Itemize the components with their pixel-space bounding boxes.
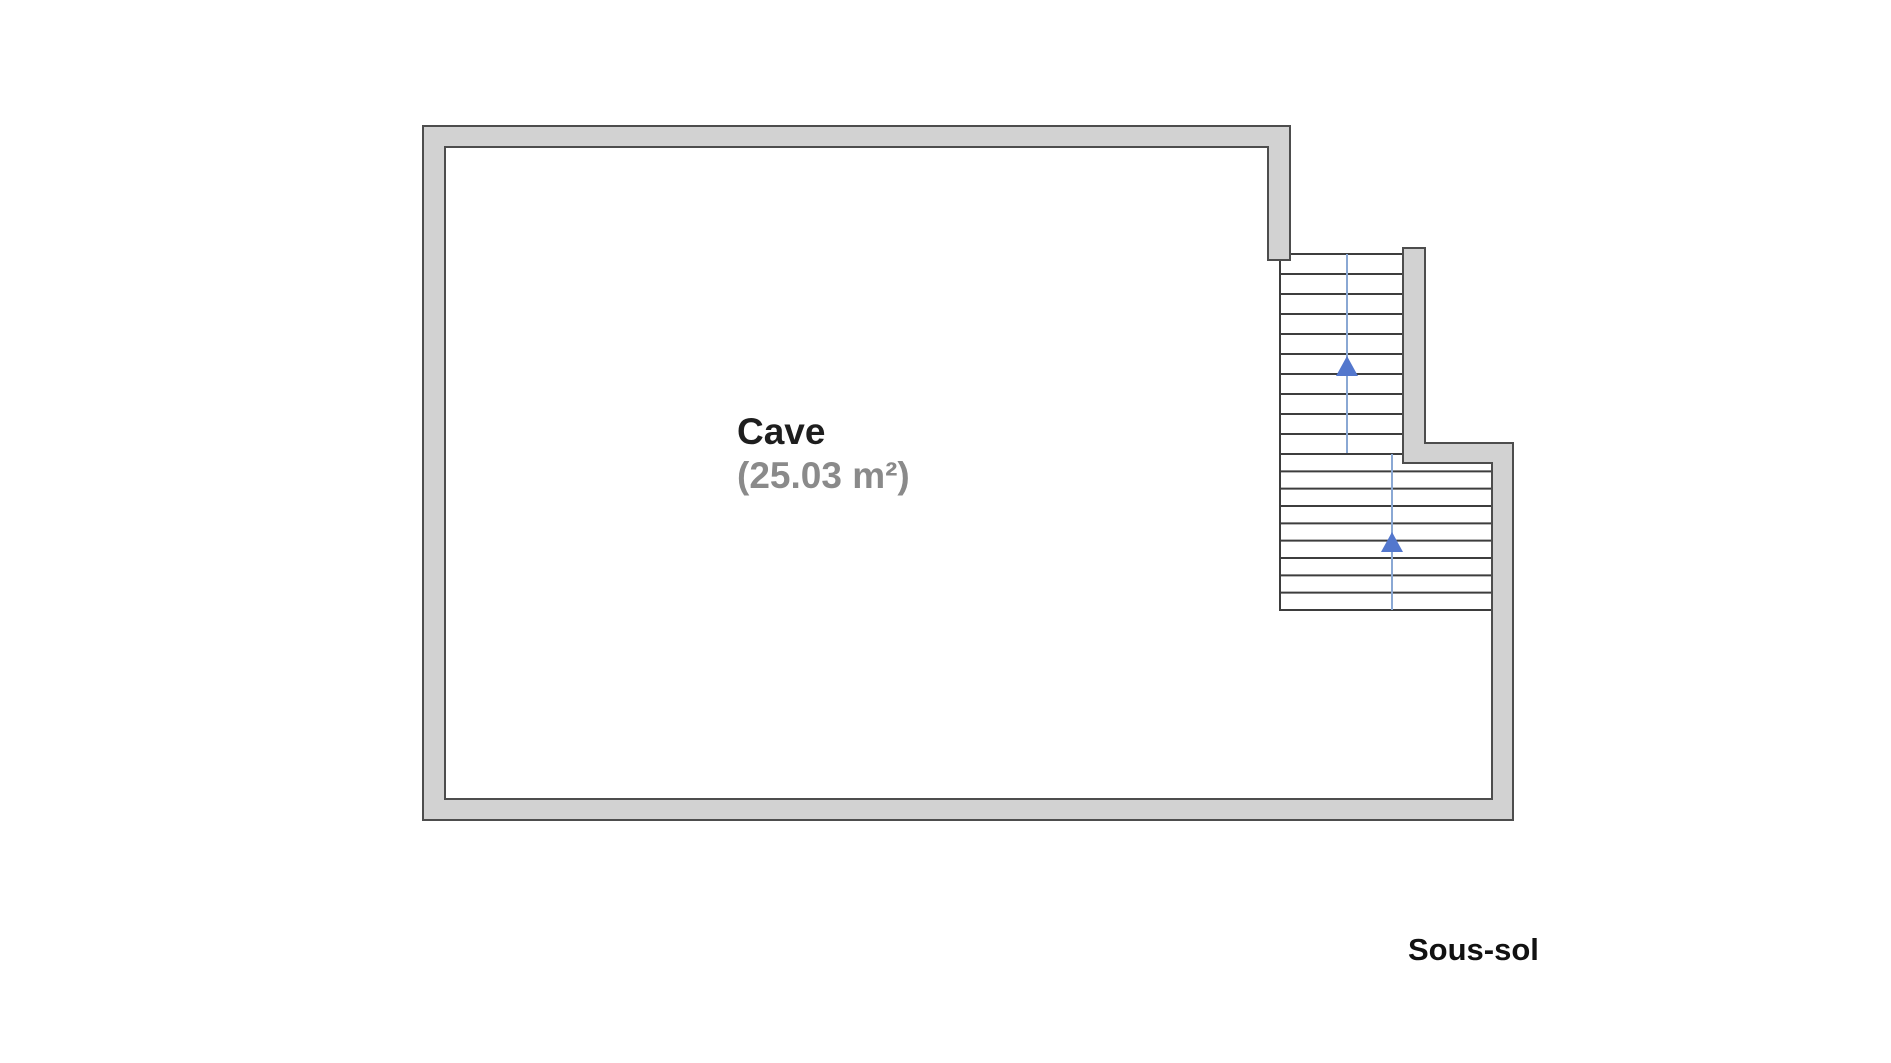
floor-plan-page: Cave (25.03 m²) Sous-sol <box>0 0 1891 1063</box>
room-name-label: Cave <box>737 410 910 454</box>
room-label-block: Cave (25.03 m²) <box>737 410 910 498</box>
room-area-label: (25.03 m²) <box>737 454 910 498</box>
floor-level-label: Sous-sol <box>1408 932 1539 968</box>
floor-plan-canvas <box>0 0 1891 1063</box>
stairs-lower-flight <box>1280 454 1492 610</box>
stairs-upper-flight <box>1280 254 1403 454</box>
stairs-lower-flight-box <box>1280 454 1492 610</box>
